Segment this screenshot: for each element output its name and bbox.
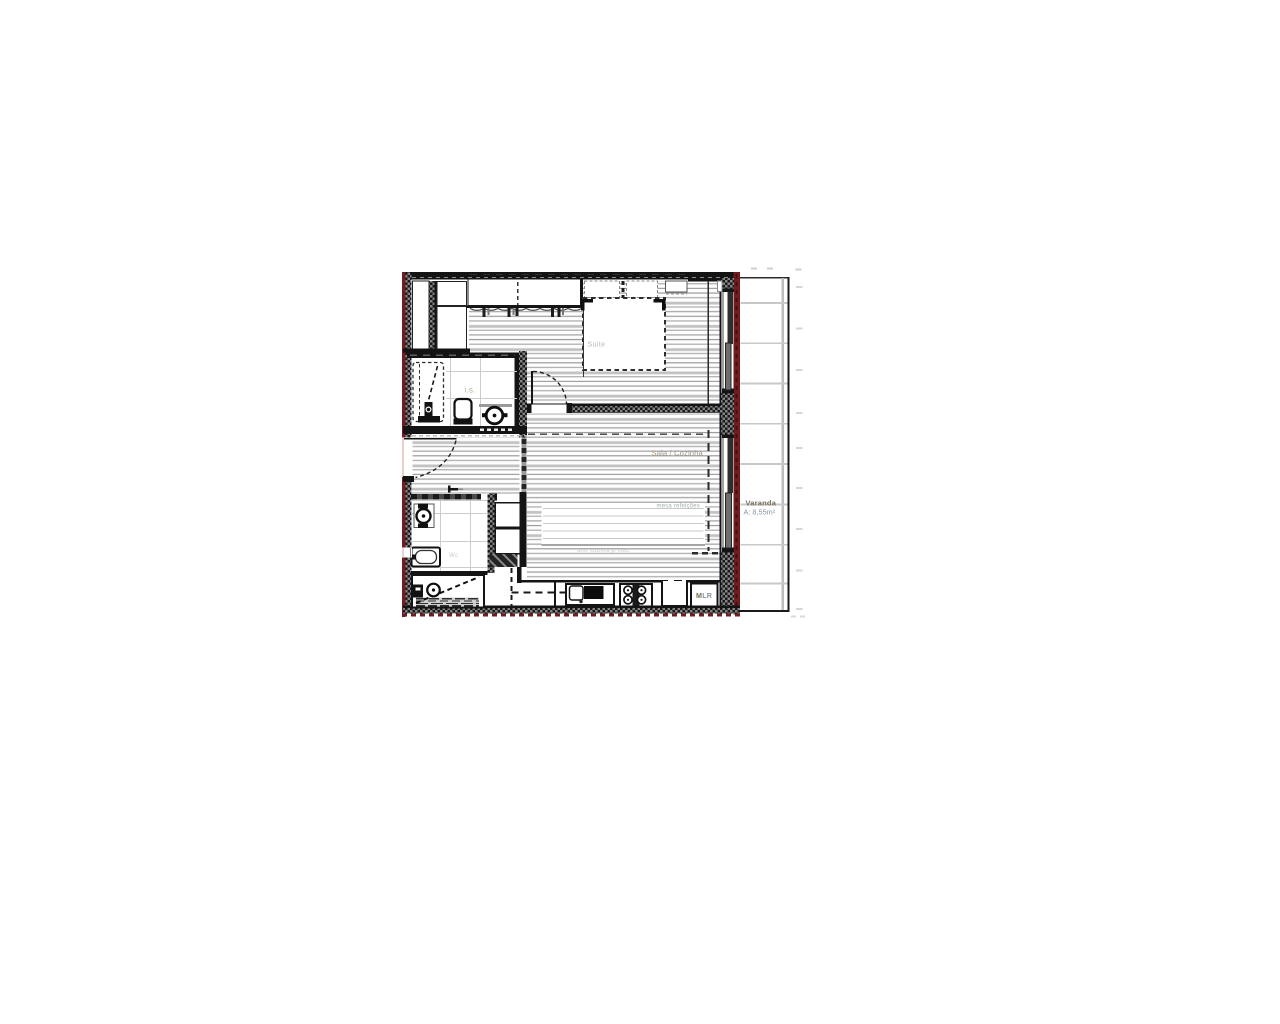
svg-text:Sala / Cozinha: Sala / Cozinha [652, 448, 704, 457]
svg-text:arm. cozinha p/ med.: arm. cozinha p/ med. [578, 548, 631, 554]
svg-text:Varanda: Varanda [746, 499, 777, 508]
svg-text:Suite: Suite [588, 342, 606, 349]
svg-text:Wc: Wc [449, 553, 459, 559]
svg-text:A: 8,55m²: A: 8,55m² [744, 508, 776, 517]
svg-text:mesa refeições: mesa refeições [657, 504, 701, 510]
svg-text:MLR: MLR [696, 591, 713, 600]
svg-text:I.S.: I.S. [465, 388, 476, 395]
